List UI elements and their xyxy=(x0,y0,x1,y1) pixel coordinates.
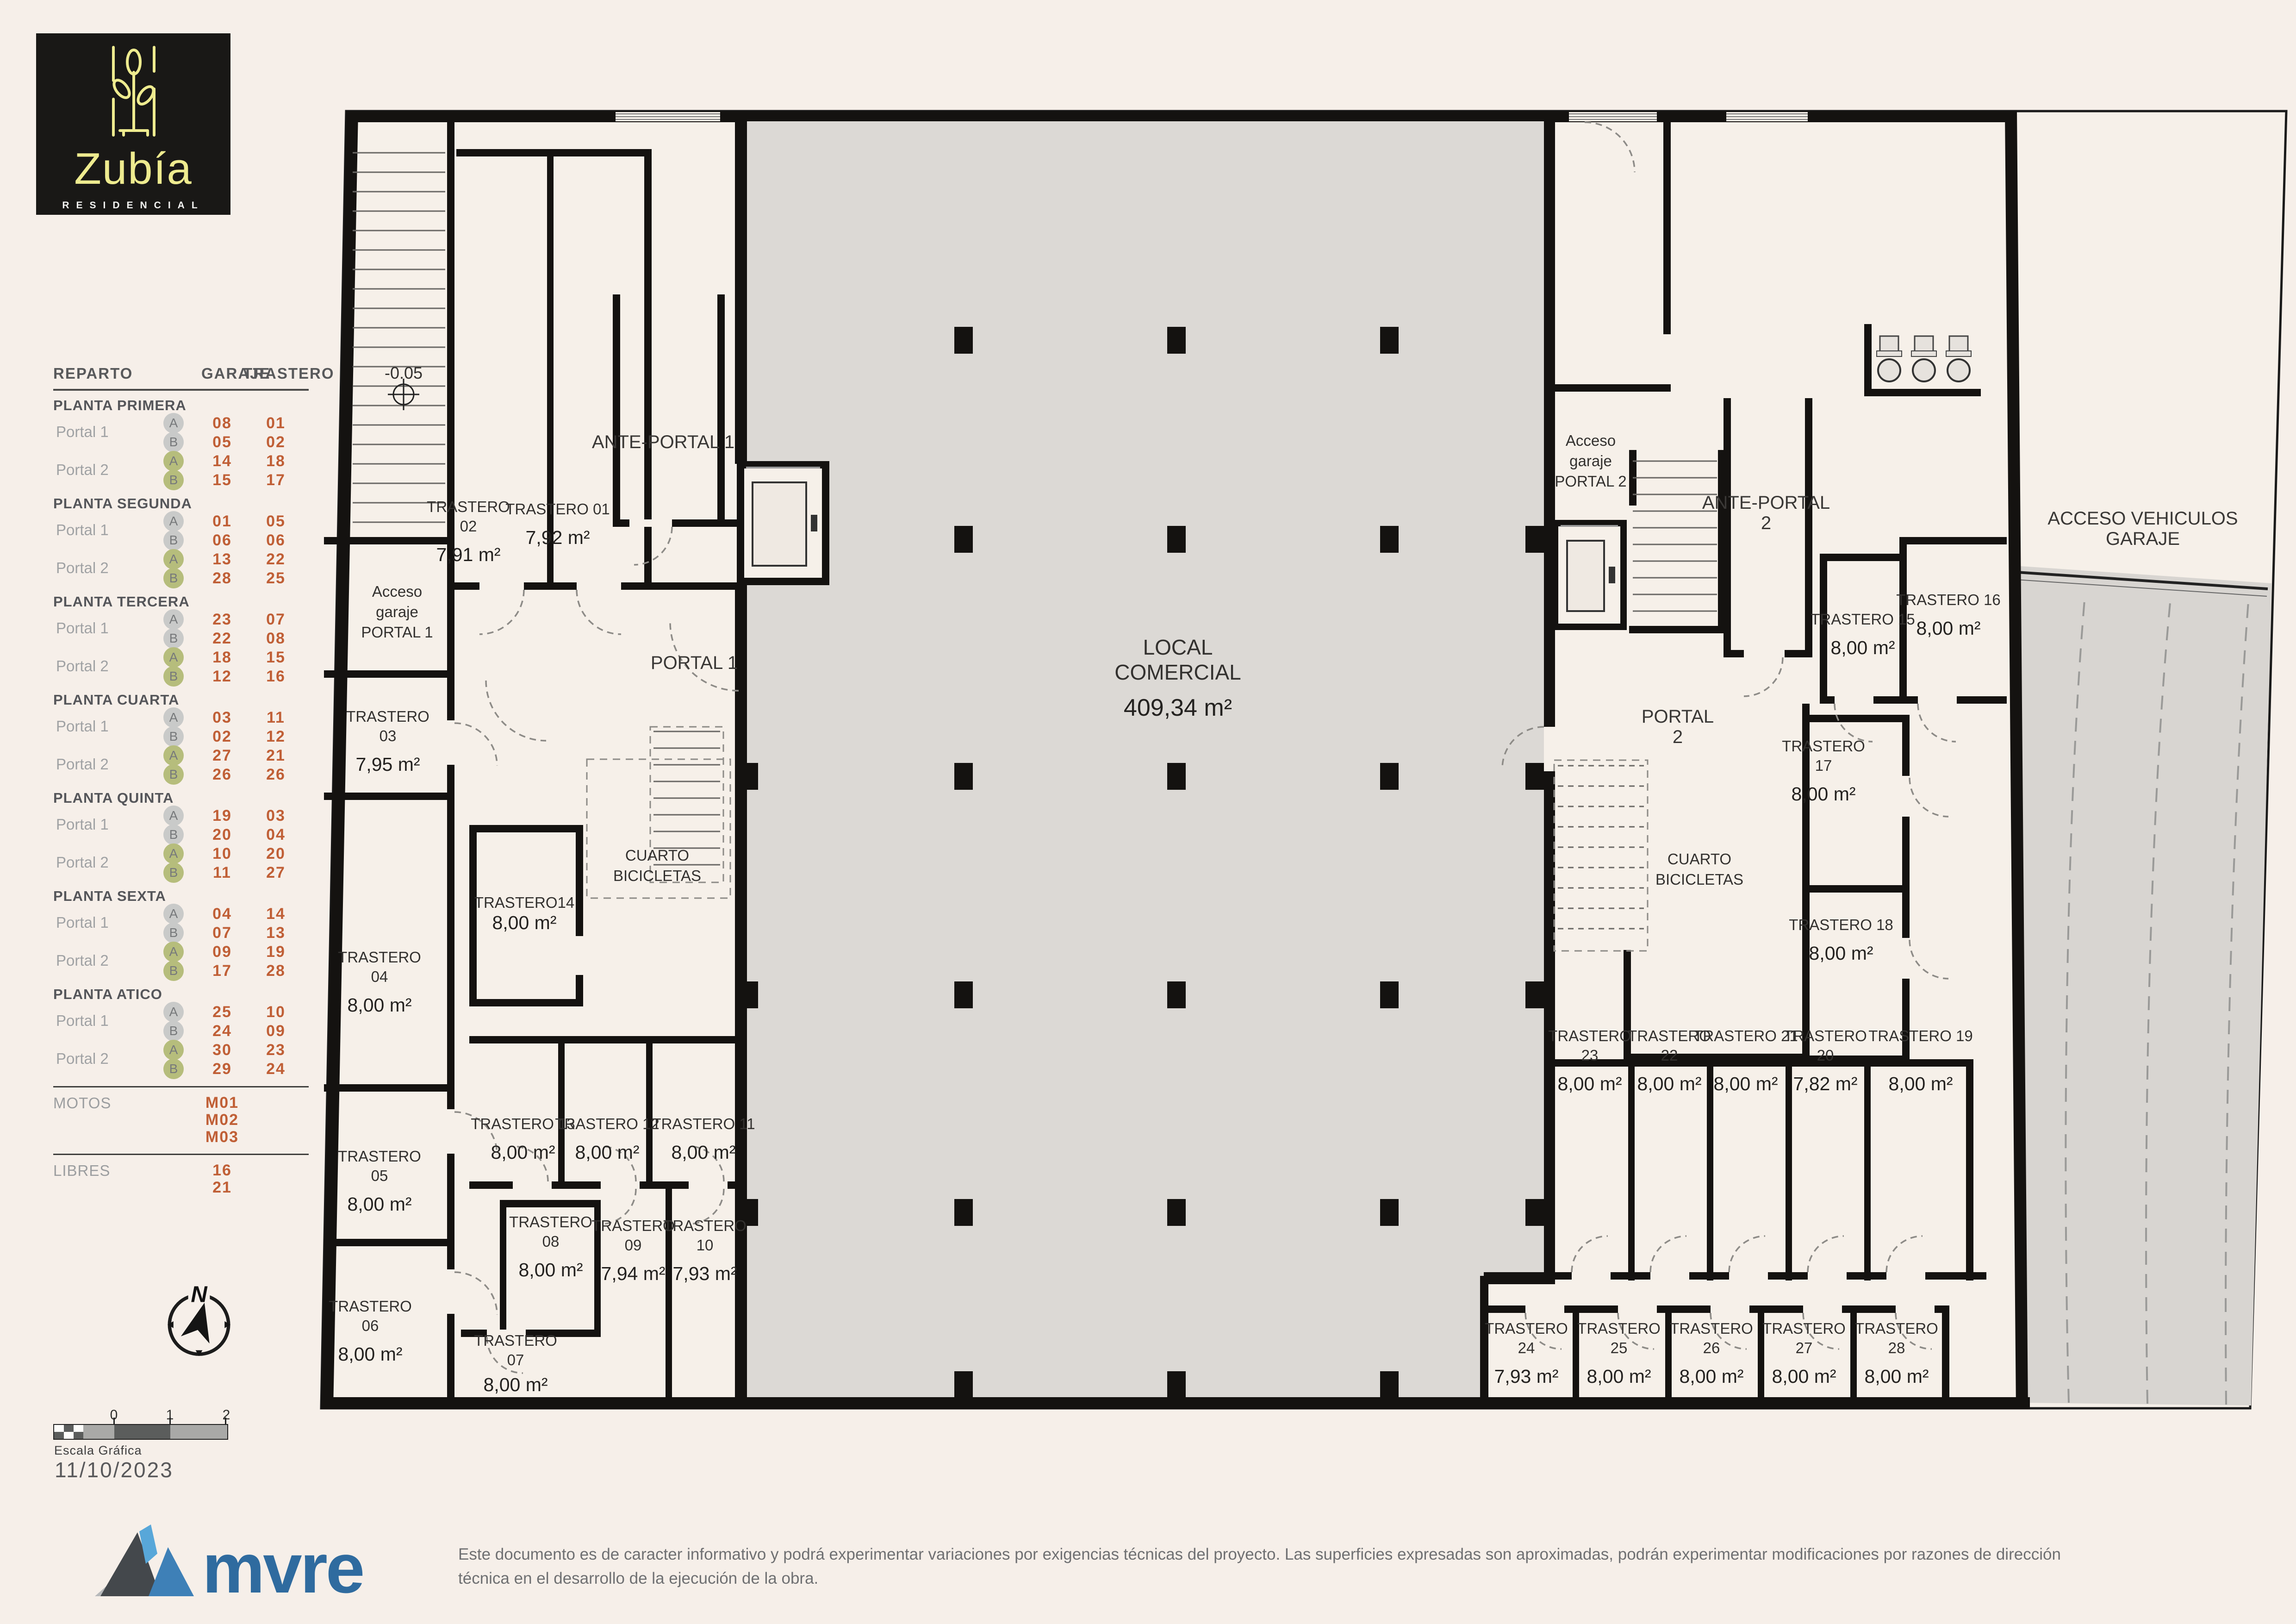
compass: N xyxy=(160,1282,238,1363)
garaje-number: 01 xyxy=(201,512,243,531)
trastero-number: 11 xyxy=(243,709,309,727)
mountain-icon: mvre xyxy=(95,1523,391,1604)
room-label: TRASTERO 198,00 m² xyxy=(1868,1026,1973,1094)
room-name: BICICLETAS xyxy=(613,866,701,886)
room-area: 8,00 m² xyxy=(555,1142,660,1162)
unit-badge: A xyxy=(163,745,184,766)
trastero-number: 02 xyxy=(243,433,309,451)
unit-badge: B xyxy=(163,568,184,588)
unit-badge: A xyxy=(163,549,184,569)
unit-badge: A xyxy=(163,511,184,531)
aux-number: M02 xyxy=(201,1111,243,1129)
planta-title: PLANTA SEGUNDA xyxy=(53,495,309,511)
room-name: LOCAL xyxy=(1114,635,1241,660)
room-name: 03 xyxy=(346,726,429,746)
room-name: 09 xyxy=(591,1236,675,1255)
room-area: 8,00 m² xyxy=(338,995,421,1015)
portal-group: Portal 1A2510B2409 xyxy=(53,1002,309,1040)
garaje-number: 23 xyxy=(201,611,243,629)
room-name: TRASTERO 16 xyxy=(1896,590,2001,610)
aux-number: M01 xyxy=(201,1094,243,1112)
garaje-number: 13 xyxy=(201,550,243,568)
room-label: TRASTERO058,00 m² xyxy=(338,1147,421,1214)
room-name: COMERCIAL xyxy=(1114,660,1241,685)
room-area: 8,00 m² xyxy=(1577,1366,1661,1387)
room-area: 7,94 m² xyxy=(591,1263,675,1284)
room-name: 2 xyxy=(1702,513,1830,533)
table-row: MOTOSM01 xyxy=(53,1094,309,1111)
room-name: TRASTERO xyxy=(338,948,421,967)
trastero-number: 26 xyxy=(243,766,309,784)
room-name: 06 xyxy=(329,1316,412,1336)
plant-icon xyxy=(89,44,177,142)
room-name: PORTAL 1 xyxy=(361,622,433,643)
col-trastero: TRASTERO xyxy=(243,365,309,382)
room-name: TRASTERO xyxy=(1784,1026,1867,1046)
garaje-number: 06 xyxy=(201,531,243,550)
room-label: TRASTERO268,00 m² xyxy=(1670,1319,1753,1387)
unit-badge: B xyxy=(163,628,184,649)
trastero-number: 14 xyxy=(243,905,309,923)
planta-section: PLANTA QUINTAPortal 1A1903B2004Portal 2A… xyxy=(53,790,309,881)
room-name: TRASTERO14 xyxy=(474,893,574,912)
portal-group: Portal 2A0919B1728 xyxy=(53,942,309,980)
scale-seg xyxy=(54,1425,83,1439)
scale-caption: Escala Gráfica xyxy=(54,1443,142,1458)
aux-label: MOTOS xyxy=(53,1094,201,1112)
portal-name: Portal 1 xyxy=(56,423,109,441)
trastero-number: 24 xyxy=(243,1060,309,1078)
garaje-number: 05 xyxy=(201,433,243,451)
room-label: TRASTERO258,00 m² xyxy=(1577,1319,1661,1387)
room-area: 8,00 m² xyxy=(1548,1074,1631,1094)
unit-badge: B xyxy=(163,961,184,981)
room-area: 7,91 m² xyxy=(427,544,510,565)
divider xyxy=(53,1154,309,1155)
room-name: 27 xyxy=(1762,1338,1846,1358)
disclaimer: Este documento es de caracter informativ… xyxy=(458,1543,2106,1591)
date: 11/10/2023 xyxy=(55,1457,174,1482)
scale-seg xyxy=(170,1425,227,1439)
portal-group: Portal 2A3023B2924 xyxy=(53,1040,309,1078)
room-label: ANTE-PORTAL 1 xyxy=(592,432,734,452)
unit-badge: A xyxy=(163,1040,184,1060)
portal-name: Portal 2 xyxy=(56,756,109,773)
unit-badge: B xyxy=(163,530,184,550)
unit-badge: B xyxy=(163,1021,184,1041)
room-label: PORTAL 1 xyxy=(651,653,738,673)
room-area: 8,00 m² xyxy=(1782,784,1865,804)
room-area: 8,00 m² xyxy=(1670,1366,1753,1387)
room-name: CUARTO xyxy=(613,845,701,866)
unit-badge: B xyxy=(163,1059,184,1079)
garaje-number: 22 xyxy=(201,630,243,648)
unit-badge: B xyxy=(163,432,184,452)
room-name: TRASTERO xyxy=(1670,1319,1753,1338)
reparto-header: REPARTO GARAJE TRASTERO xyxy=(53,365,309,391)
unit-badge: A xyxy=(163,904,184,924)
trastero-number: 25 xyxy=(243,569,309,587)
room-label: TRASTERO238,00 m² xyxy=(1548,1026,1631,1094)
floor-plan-labels: -0.05TRASTERO027,91 m²TRASTERO 017,92 m²… xyxy=(0,0,2296,1624)
unit-badge: B xyxy=(163,764,184,785)
room-label: PORTAL2 xyxy=(1642,706,1714,747)
room-area: 409,34 m² xyxy=(1114,698,1241,718)
room-label: CUARTOBICICLETAS xyxy=(613,845,701,886)
trastero-number: 17 xyxy=(243,471,309,489)
planta-title: PLANTA TERCERA xyxy=(53,593,309,609)
scale-seg xyxy=(83,1425,114,1439)
unit-badge: A xyxy=(163,413,184,433)
room-name: TRASTERO xyxy=(474,1331,557,1350)
room-area: 8,00 m² xyxy=(1693,1074,1798,1094)
room-label: TRASTERO247,93 m² xyxy=(1485,1319,1568,1387)
garaje-number: 18 xyxy=(201,649,243,667)
divider xyxy=(53,1086,309,1087)
room-label: TRASTERO178,00 m² xyxy=(1782,737,1865,804)
room-name: TRASTERO 21 xyxy=(1693,1026,1798,1046)
room-area: 8,00 m² xyxy=(474,1374,557,1395)
room-area: 7,95 m² xyxy=(346,754,429,775)
trastero-number: 05 xyxy=(243,512,309,531)
room-name: TRASTERO xyxy=(1577,1319,1661,1338)
room-area: 8,00 m² xyxy=(1868,1074,1973,1094)
room-name: TRASTERO xyxy=(427,497,510,517)
unit-badge: B xyxy=(163,824,184,845)
planta-section: PLANTA CUARTAPortal 1A0311B0212Portal 2A… xyxy=(53,692,309,783)
plan-sheet: -0.05TRASTERO027,91 m²TRASTERO 017,92 m²… xyxy=(0,0,2296,1624)
aux-number: 21 xyxy=(201,1179,243,1197)
portal-name: Portal 1 xyxy=(56,718,109,735)
room-name: TRASTERO xyxy=(346,707,429,726)
room-area: 8,00 m² xyxy=(1855,1366,1938,1387)
unit-badge: A xyxy=(163,806,184,826)
unit-badge: A xyxy=(163,707,184,728)
portal-name: Portal 1 xyxy=(56,816,109,833)
portal-group: Portal 1A2307B2208 xyxy=(53,609,309,647)
room-name: TRASTERO xyxy=(1762,1319,1846,1338)
garaje-number: 12 xyxy=(201,668,243,686)
trastero-number: 27 xyxy=(243,864,309,882)
reparto-table: REPARTO GARAJE TRASTERO PLANTA PRIMERAPo… xyxy=(53,365,309,1196)
scale-bar-graphic xyxy=(53,1424,228,1440)
room-label: TRASTERO 017,92 m² xyxy=(505,500,610,548)
room-name: 17 xyxy=(1782,756,1865,775)
table-row: M03 xyxy=(53,1128,309,1145)
portal-name: Portal 1 xyxy=(56,1012,109,1030)
room-label: -0.05 xyxy=(385,363,423,383)
unit-badge: A xyxy=(163,609,184,630)
col-garaje: GARAJE xyxy=(201,365,243,382)
unit-badge: B xyxy=(163,726,184,747)
portal-name: Portal 2 xyxy=(56,559,109,577)
portal-group: Portal 1A0105B0606 xyxy=(53,511,309,549)
brand-logo: mvre xyxy=(95,1523,391,1606)
room-name: 23 xyxy=(1548,1046,1631,1065)
room-label: TRASTERO 168,00 m² xyxy=(1896,590,2001,638)
room-label: TRASTERO037,95 m² xyxy=(346,707,429,775)
portal-name: Portal 2 xyxy=(56,952,109,969)
garaje-number: 28 xyxy=(201,569,243,587)
room-area: 8,00 m² xyxy=(329,1344,412,1364)
room-label: ACCESO VEHICULOSGARAJE xyxy=(2047,508,2238,549)
room-name: 10 xyxy=(663,1236,747,1255)
room-name: garaje xyxy=(1555,451,1626,471)
planta-section: PLANTA SEGUNDAPortal 1A0105B0606Portal 2… xyxy=(53,495,309,587)
room-name: PORTAL 1 xyxy=(651,653,738,673)
planta-title: PLANTA ATICO xyxy=(53,986,309,1002)
room-name: TRASTERO xyxy=(1485,1319,1568,1338)
room-label: AccesogarajePORTAL 1 xyxy=(361,581,433,643)
room-name: PORTAL 2 xyxy=(1555,471,1626,492)
room-label: TRASTERO078,00 m² xyxy=(474,1331,557,1395)
room-name: TRASTERO xyxy=(1782,737,1865,756)
garaje-number: 04 xyxy=(201,905,243,923)
room-name: ANTE-PORTAL 1 xyxy=(592,432,734,452)
room-area: 8,00 m² xyxy=(509,1260,592,1280)
room-area: 8,00 m² xyxy=(1789,943,1893,963)
unit-badge: B xyxy=(163,666,184,687)
room-name: 2 xyxy=(1642,727,1714,747)
room-name: ACCESO VEHICULOS xyxy=(2047,508,2238,529)
garaje-number: 19 xyxy=(201,807,243,825)
room-name: TRASTERO xyxy=(509,1212,592,1232)
compass-icon: N xyxy=(160,1282,238,1361)
trastero-number: 03 xyxy=(243,807,309,825)
room-name: 04 xyxy=(338,967,421,987)
unit-badge: A xyxy=(163,647,184,668)
garaje-number: 10 xyxy=(201,845,243,863)
room-label: AccesogarajePORTAL 2 xyxy=(1555,431,1626,492)
reparto-title: REPARTO xyxy=(53,365,146,382)
room-name: 20 xyxy=(1784,1046,1867,1065)
room-name: TRASTERO xyxy=(1548,1026,1631,1046)
table-row: M02 xyxy=(53,1111,309,1128)
portal-group: Portal 1A0414B0713 xyxy=(53,904,309,942)
unit-badge: A xyxy=(163,942,184,962)
room-label: LOCALCOMERCIAL409,34 m² xyxy=(1114,635,1241,718)
planta-section: PLANTA ATICOPortal 1A2510B2409Portal 2A3… xyxy=(53,986,309,1078)
planta-section: PLANTA TERCERAPortal 1A2307B2208Portal 2… xyxy=(53,593,309,685)
room-name: TRASTERO xyxy=(591,1216,675,1236)
logo-name: Zubía xyxy=(36,144,230,194)
portal-name: Portal 2 xyxy=(56,854,109,871)
trastero-number: 22 xyxy=(243,550,309,568)
room-name: 07 xyxy=(474,1350,557,1370)
room-name: garaje xyxy=(361,602,433,622)
planta-title: PLANTA SEXTA xyxy=(53,888,309,904)
room-name: 08 xyxy=(509,1232,592,1251)
room-label: TRASTERO 118,00 m² xyxy=(652,1114,755,1162)
table-row: 21 xyxy=(53,1179,309,1196)
portal-group: Portal 2A1418B1517 xyxy=(53,451,309,489)
garaje-number: 26 xyxy=(201,766,243,784)
room-name: TRASTERO xyxy=(329,1297,412,1316)
room-name: Acceso xyxy=(1555,431,1626,451)
trastero-number: 28 xyxy=(243,962,309,980)
planta-title: PLANTA QUINTA xyxy=(53,790,309,806)
garaje-number: 30 xyxy=(201,1041,243,1059)
garaje-number: 24 xyxy=(201,1022,243,1040)
room-label: TRASTERO148,00 m² xyxy=(474,893,574,933)
room-name: 02 xyxy=(427,517,510,536)
scale-2: 2 xyxy=(223,1407,230,1423)
room-name: GARAJE xyxy=(2047,529,2238,549)
portal-group: Portal 1A0311B0212 xyxy=(53,707,309,745)
trastero-number: 09 xyxy=(243,1022,309,1040)
room-name: TRASTERO 19 xyxy=(1868,1026,1973,1046)
trastero-number: 19 xyxy=(243,943,309,961)
room-label: TRASTERO207,82 m² xyxy=(1784,1026,1867,1094)
aux-label: LIBRES xyxy=(53,1162,201,1180)
room-area: 8,00 m² xyxy=(474,912,574,933)
garaje-number: 07 xyxy=(201,924,243,942)
room-name: TRASTERO 18 xyxy=(1789,915,1893,935)
room-name: 28 xyxy=(1855,1338,1938,1358)
unit-badge: B xyxy=(163,862,184,883)
room-name: TRASTERO xyxy=(338,1147,421,1166)
portal-name: Portal 2 xyxy=(56,1050,109,1068)
garaje-number: 15 xyxy=(201,471,243,489)
garaje-number: 29 xyxy=(201,1060,243,1078)
portal-name: Portal 1 xyxy=(56,914,109,931)
room-label: CUARTOBICICLETAS xyxy=(1655,849,1743,890)
trastero-number: 12 xyxy=(243,728,309,746)
room-name: 26 xyxy=(1670,1338,1753,1358)
room-name: BICICLETAS xyxy=(1655,869,1743,890)
planta-section: PLANTA SEXTAPortal 1A0414B0713Portal 2A0… xyxy=(53,888,309,980)
unit-badge: B xyxy=(163,470,184,490)
room-label: TRASTERO088,00 m² xyxy=(509,1212,592,1280)
garaje-number: 11 xyxy=(201,864,243,882)
garaje-number: 14 xyxy=(201,452,243,470)
garaje-number: 17 xyxy=(201,962,243,980)
logo: Zubía RESIDENCIAL xyxy=(36,33,230,215)
aux-number: 16 xyxy=(201,1162,243,1180)
unit-badge: A xyxy=(163,451,184,471)
scale-seg xyxy=(114,1425,170,1439)
room-area: 7,92 m² xyxy=(505,527,610,548)
trastero-number: 07 xyxy=(243,611,309,629)
logo-subtitle: RESIDENCIAL xyxy=(36,200,230,211)
garaje-number: 25 xyxy=(201,1003,243,1021)
portal-group: Portal 2A1020B1127 xyxy=(53,843,309,881)
room-name: 05 xyxy=(338,1166,421,1186)
room-area: 8,00 m² xyxy=(1811,637,1915,658)
trastero-number: 18 xyxy=(243,452,309,470)
garaje-number: 03 xyxy=(201,709,243,727)
room-area: 8,00 m² xyxy=(1896,618,2001,638)
aux-number: M03 xyxy=(201,1128,243,1146)
room-area: 7,82 m² xyxy=(1784,1074,1867,1094)
brand-name: mvre xyxy=(202,1529,363,1604)
room-name: TRASTERO xyxy=(1855,1319,1938,1338)
room-name: TRASTERO 11 xyxy=(652,1114,755,1134)
room-name: 25 xyxy=(1577,1338,1661,1358)
room-name: CUARTO xyxy=(1655,849,1743,869)
unit-badge: A xyxy=(163,843,184,864)
room-area: 7,93 m² xyxy=(1485,1366,1568,1387)
trastero-number: 15 xyxy=(243,649,309,667)
room-label: TRASTERO068,00 m² xyxy=(329,1297,412,1364)
room-name: TRASTERO 12 xyxy=(555,1114,660,1134)
trastero-number: 01 xyxy=(243,414,309,432)
portal-group: Portal 1A1903B2004 xyxy=(53,806,309,843)
room-name: ANTE-PORTAL xyxy=(1702,493,1830,513)
room-name: Acceso xyxy=(361,581,433,602)
portal-group: Portal 2A2721B2626 xyxy=(53,745,309,783)
trastero-number: 04 xyxy=(243,826,309,844)
room-area: 8,00 m² xyxy=(652,1142,755,1162)
portal-name: Portal 2 xyxy=(56,461,109,479)
room-label: TRASTERO107,93 m² xyxy=(663,1216,747,1284)
room-name: TRASTERO 01 xyxy=(505,500,610,519)
trastero-number: 13 xyxy=(243,924,309,942)
garaje-number: 20 xyxy=(201,826,243,844)
garaje-number: 09 xyxy=(201,943,243,961)
room-area: 8,00 m² xyxy=(338,1194,421,1214)
unit-badge: B xyxy=(163,923,184,943)
room-label: TRASTERO 188,00 m² xyxy=(1789,915,1893,963)
planta-title: PLANTA PRIMERA xyxy=(53,397,309,413)
planta-section: PLANTA PRIMERAPortal 1A0801B0502Portal 2… xyxy=(53,397,309,489)
trastero-number: 06 xyxy=(243,531,309,550)
planta-title: PLANTA CUARTA xyxy=(53,692,309,707)
portal-group: Portal 1A0801B0502 xyxy=(53,413,309,451)
unit-badge: A xyxy=(163,1002,184,1022)
room-label: TRASTERO097,94 m² xyxy=(591,1216,675,1284)
room-name: 24 xyxy=(1485,1338,1568,1358)
room-label: TRASTERO048,00 m² xyxy=(338,948,421,1015)
trastero-number: 20 xyxy=(243,845,309,863)
room-label: ANTE-PORTAL2 xyxy=(1702,493,1830,533)
portal-name: Portal 1 xyxy=(56,619,109,637)
room-name: PORTAL xyxy=(1642,706,1714,727)
table-row: LIBRES16 xyxy=(53,1162,309,1179)
trastero-number: 23 xyxy=(243,1041,309,1059)
portal-group: Portal 2A1815B1216 xyxy=(53,647,309,685)
room-label: TRASTERO 218,00 m² xyxy=(1693,1026,1798,1094)
garaje-number: 27 xyxy=(201,747,243,765)
room-area: 7,93 m² xyxy=(663,1263,747,1284)
compass-n: N xyxy=(191,1282,208,1307)
room-label: TRASTERO 128,00 m² xyxy=(555,1114,660,1162)
garaje-number: 08 xyxy=(201,414,243,432)
trastero-number: 21 xyxy=(243,747,309,765)
trastero-number: 16 xyxy=(243,668,309,686)
portal-name: Portal 2 xyxy=(56,657,109,675)
room-area: 8,00 m² xyxy=(1762,1366,1846,1387)
room-label: TRASTERO278,00 m² xyxy=(1762,1319,1846,1387)
trastero-number: 10 xyxy=(243,1003,309,1021)
portal-name: Portal 1 xyxy=(56,521,109,539)
room-label: TRASTERO027,91 m² xyxy=(427,497,510,565)
garaje-number: 02 xyxy=(201,728,243,746)
room-label: TRASTERO288,00 m² xyxy=(1855,1319,1938,1387)
room-name: -0.05 xyxy=(385,363,423,383)
portal-group: Portal 2A1322B2825 xyxy=(53,549,309,587)
trastero-number: 08 xyxy=(243,630,309,648)
room-name: TRASTERO xyxy=(663,1216,747,1236)
